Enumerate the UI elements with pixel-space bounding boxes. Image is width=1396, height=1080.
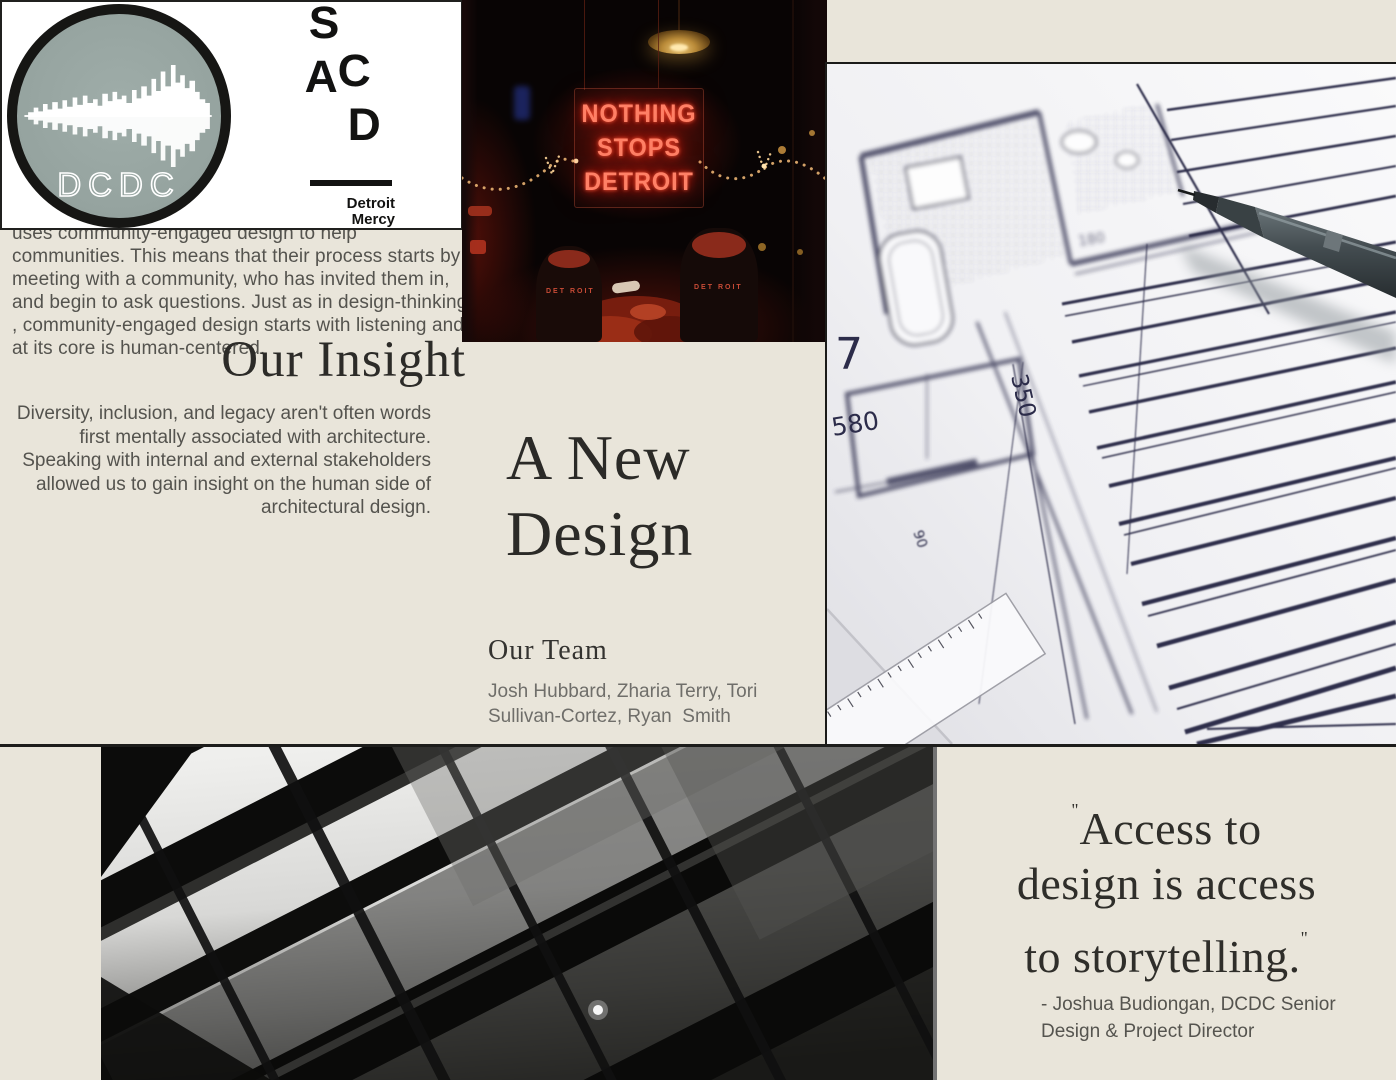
attribution-line1: - Joshua Budiongan, DCDC Senior — [1041, 991, 1336, 1018]
poster-page: There is endless potential within the ci… — [0, 0, 1396, 1080]
feature-heading-line1: A New — [506, 420, 693, 496]
quote-panel: "Access to design is access to storytell… — [937, 747, 1396, 1080]
sacd-divider-bar — [310, 180, 392, 186]
sacd-letter-d: D — [348, 102, 381, 147]
blueprint-label-7: 7 — [835, 329, 863, 380]
attribution-line2: Design & Project Director — [1041, 1018, 1336, 1045]
quote-line2: design is access — [937, 856, 1396, 911]
quote-attribution: - Joshua Budiongan, DCDC Senior Design &… — [1041, 991, 1336, 1045]
hoodie-text-left: DET ROIT — [546, 288, 595, 295]
sacd-letter-a: A — [305, 54, 338, 99]
quote-line3: to storytelling." — [937, 911, 1396, 984]
sacd-school-line1: Detroit — [302, 196, 395, 212]
scarf-right — [692, 232, 746, 258]
blueprint-drawing: 580 7 350 90 180 — [827, 64, 1396, 744]
close-quote-mark: " — [1301, 928, 1309, 948]
insight-heading: Our Insight — [0, 332, 466, 388]
neon-sign: NOTHING STOPS DETROIT — [574, 88, 704, 208]
open-quote-mark: " — [1071, 800, 1079, 820]
neon-sign-line2: STOPS — [579, 131, 699, 165]
pull-quote: "Access to design is access to storytell… — [937, 783, 1396, 984]
quote-line1-text: Access to — [1080, 803, 1262, 854]
neon-sign-line3: DETROIT — [579, 165, 699, 199]
sacd-letter-c: C — [338, 48, 371, 93]
logo-strip: DCDC S A C D Detroit Mercy — [0, 0, 463, 230]
team-heading: Our Team — [488, 635, 608, 667]
horizontal-rule — [0, 744, 1396, 747]
dcdc-logo-label: DCDC — [17, 166, 221, 204]
team-names: Josh Hubbard, Zharia Terry, Tori Sulliva… — [488, 679, 818, 729]
hoodie-text-right: DET ROIT — [694, 284, 743, 291]
blueprint-photo: 580 7 350 90 180 — [825, 62, 1396, 744]
scarf-left — [548, 250, 590, 268]
quote-line3-text: to storytelling. — [1024, 931, 1300, 982]
skylight-photo — [101, 747, 937, 1080]
sacd-letter-s: S — [309, 0, 340, 45]
feature-heading: A New Design — [506, 420, 693, 572]
insight-paragraph: Diversity, inclusion, and legacy aren't … — [0, 402, 431, 520]
neon-sign-line1: NOTHING — [579, 97, 699, 131]
neon-storefront-photo: NOTHING STOPS DETROIT DET ROIT DET ROIT — [462, 0, 827, 342]
quote-line2-text: design is access — [1017, 858, 1316, 909]
feature-heading-line2: Design — [506, 496, 693, 572]
sacd-school-line2: Mercy — [302, 212, 395, 228]
dcdc-logo-icon: DCDC — [7, 4, 231, 228]
sacd-school-name: Detroit Mercy — [302, 196, 395, 228]
quote-line1: "Access to — [937, 783, 1396, 856]
sacd-logo: S A C D Detroit Mercy — [302, 2, 462, 228]
skylight-structure — [101, 747, 933, 1080]
